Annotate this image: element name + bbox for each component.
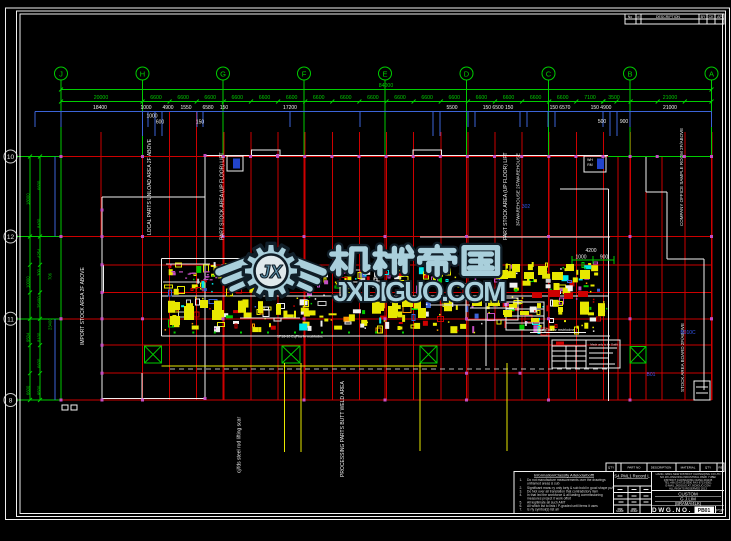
- svg-text:300: 300: [37, 268, 42, 276]
- svg-text:6600: 6600: [150, 95, 162, 101]
- svg-text:6600: 6600: [286, 95, 298, 101]
- svg-text:7100: 7100: [584, 95, 596, 101]
- svg-text:B: B: [627, 69, 632, 78]
- svg-text:6600: 6600: [37, 180, 42, 190]
- svg-text:6600: 6600: [204, 95, 216, 101]
- svg-text:18400: 18400: [93, 105, 107, 111]
- svg-text:A: A: [709, 69, 714, 78]
- svg-text:10000: 10000: [26, 276, 31, 288]
- svg-text:150 6570: 150 6570: [550, 105, 571, 111]
- svg-text:B010C: B010C: [680, 330, 696, 336]
- svg-text:C: C: [546, 69, 552, 78]
- svg-text:302: 302: [522, 204, 531, 210]
- svg-text:6600: 6600: [503, 95, 515, 101]
- svg-text:6600: 6600: [421, 95, 433, 101]
- svg-text:6600: 6600: [313, 95, 325, 101]
- svg-text:25400: 25400: [37, 296, 42, 308]
- svg-text:6600: 6600: [394, 95, 406, 101]
- svg-text:21000: 21000: [663, 105, 677, 111]
- svg-text:6600: 6600: [557, 95, 569, 101]
- svg-text:F: F: [302, 69, 307, 78]
- svg-text:4.: 4.: [520, 493, 523, 497]
- svg-text:PART STOCK AREA (UP FLOOR) LIF: PART STOCK AREA (UP FLOOR) LIFT: [503, 152, 509, 240]
- svg-text:10: 10: [7, 154, 15, 161]
- svg-text:3500: 3500: [608, 95, 620, 101]
- svg-text:d: d: [638, 15, 640, 19]
- svg-text:CK: CK: [709, 15, 715, 19]
- svg-text:6600: 6600: [177, 95, 189, 101]
- svg-text:cj/fds steel rod lifting scar: cj/fds steel rod lifting scar: [237, 417, 243, 473]
- svg-text:8100: 8100: [37, 332, 42, 342]
- svg-text:DWG.NO.: DWG.NO.: [652, 507, 692, 514]
- svg-text:17200: 17200: [283, 105, 297, 111]
- svg-text:JX: JX: [260, 262, 283, 282]
- svg-text:unframed areas & sub: unframed areas & sub: [527, 482, 560, 486]
- svg-text:150: 150: [196, 120, 205, 126]
- svg-text:RM: RM: [587, 163, 593, 167]
- svg-text:6600: 6600: [476, 95, 488, 101]
- svg-text:1.: 1.: [520, 478, 523, 482]
- svg-text:6600: 6600: [37, 358, 42, 368]
- svg-text:MATERIAL: MATERIAL: [681, 466, 696, 470]
- svg-text:23400: 23400: [48, 318, 53, 330]
- svg-text:[BRAMA/4LK]: [BRAMA/4LK]: [675, 501, 701, 506]
- svg-text:4900: 4900: [162, 105, 173, 111]
- svg-text:ALL RIGHTS RESERVED 2013: ALL RIGHTS RESERVED 2013: [669, 487, 707, 491]
- svg-text:S4.PML1 Record L: S4.PML1 Record L: [614, 474, 650, 479]
- svg-text:9504: 9504: [26, 332, 31, 342]
- svg-text:18000: 18000: [26, 193, 31, 205]
- svg-text:Information/Classify Artelodar: Information/Classify Artelodarbofft: [534, 473, 595, 478]
- svg-text:6600: 6600: [26, 385, 31, 395]
- svg-text:JXDIGUO.COM: JXDIGUO.COM: [333, 276, 507, 307]
- svg-text:21000: 21000: [663, 95, 678, 101]
- svg-text:BY: BY: [701, 15, 706, 19]
- svg-text:7.: 7.: [520, 508, 523, 512]
- svg-text:600: 600: [156, 120, 165, 126]
- svg-text:H: H: [140, 69, 145, 78]
- svg-text:No: No: [628, 15, 633, 19]
- svg-text:AP: AP: [717, 15, 722, 19]
- svg-text:1000: 1000: [140, 105, 151, 111]
- svg-text:6600: 6600: [530, 95, 542, 101]
- svg-text:4200: 4200: [585, 248, 596, 254]
- svg-text:8: 8: [9, 398, 13, 405]
- svg-text:20000: 20000: [94, 95, 109, 101]
- svg-text:B01: B01: [647, 372, 656, 378]
- svg-text:6600: 6600: [340, 95, 352, 101]
- svg-text:1F16-10 EqTba hr mstrlodne: 1F16-10 EqTba hr mstrlodne: [277, 335, 323, 339]
- svg-text:6600: 6600: [449, 95, 461, 101]
- svg-text:WH: WH: [587, 158, 593, 162]
- svg-text:LOCAL PARTS UNLOAD AREA 2F ABO: LOCAL PARTS UNLOAD AREA 2F ABOVE: [147, 138, 153, 235]
- svg-text:scale: scale: [616, 509, 624, 513]
- svg-text:900: 900: [620, 119, 629, 125]
- svg-text:RE: RE: [718, 466, 722, 470]
- svg-text:draw: draw: [631, 509, 639, 513]
- svg-text:LogTba hr mstrlodne: LogTba hr mstrlodne: [539, 328, 574, 332]
- svg-text:DESCRIPTION: DESCRIPTION: [656, 15, 680, 19]
- svg-text:PART NO: PART NO: [627, 466, 641, 470]
- svg-text:11: 11: [7, 316, 14, 323]
- svg-text:3F/WAREHOUSE 2F/WAREHOUSE: 3F/WAREHOUSE 2F/WAREHOUSE: [516, 153, 521, 226]
- svg-text:QTY: QTY: [705, 466, 711, 470]
- svg-text:G: G: [220, 69, 226, 78]
- svg-text:6580: 6580: [202, 105, 213, 111]
- svg-text:150 6500 150: 150 6500 150: [483, 105, 514, 111]
- svg-text:PROCESSING PARTS BUTT WELD ARE: PROCESSING PARTS BUTT WELD AREA: [340, 380, 346, 477]
- svg-text:Is rty symbol(s) list all: Is rty symbol(s) list all: [527, 508, 559, 512]
- svg-text:PB01: PB01: [698, 508, 711, 514]
- svg-text:QTY: QTY: [608, 466, 614, 470]
- svg-text:12: 12: [7, 234, 15, 241]
- svg-text:COMPANY OFFICE SAMPLE ROOM 2F/: COMPANY OFFICE SAMPLE ROOM 2F/ABOVE: [679, 128, 684, 226]
- svg-text:1550: 1550: [180, 105, 191, 111]
- svg-text:IMPORT STOCK AREA 2F ABOVE: IMPORT STOCK AREA 2F ABOVE: [80, 267, 86, 345]
- svg-text:8400: 8400: [37, 218, 42, 228]
- svg-text:DESCRIPTION: DESCRIPTION: [651, 466, 672, 470]
- svg-text:706: 706: [48, 272, 53, 280]
- svg-text:PART STOCK AREA (UP FLOOR) LIF: PART STOCK AREA (UP FLOOR) LIFT: [220, 152, 226, 240]
- svg-text:84000: 84000: [379, 83, 394, 89]
- svg-text:6600: 6600: [259, 95, 271, 101]
- svg-text:5500: 5500: [446, 105, 457, 111]
- svg-text:D: D: [464, 69, 470, 78]
- svg-text:6600: 6600: [367, 95, 379, 101]
- svg-text:4254: 4254: [37, 248, 42, 258]
- svg-text:500: 500: [598, 119, 607, 125]
- svg-text:J: J: [59, 69, 63, 78]
- svg-text:150 4900: 150 4900: [591, 105, 612, 111]
- svg-text:6600: 6600: [232, 95, 244, 101]
- svg-text:9500: 9500: [37, 385, 42, 395]
- svg-text:Mech only to be Outfit: Mech only to be Outfit: [590, 343, 617, 347]
- svg-text:150: 150: [220, 105, 229, 111]
- svg-text:CUSTOM: CUSTOM: [678, 491, 698, 496]
- svg-text:E: E: [382, 69, 387, 78]
